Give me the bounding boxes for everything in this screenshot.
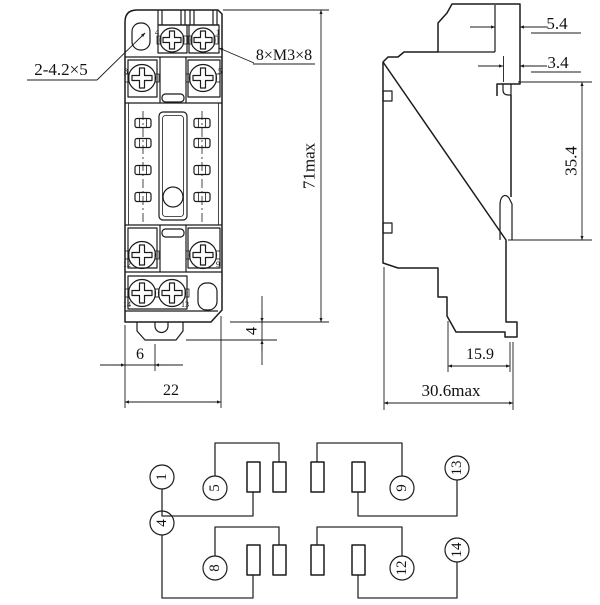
side-notch bbox=[383, 223, 392, 233]
center-post bbox=[160, 225, 186, 272]
center-post bbox=[160, 57, 186, 103]
wiring-schematic: 1 5 9 13 4 8 bbox=[150, 443, 469, 598]
dim-rail-opening: 35.4 bbox=[508, 82, 592, 240]
dim-clip-projection-label: 4 bbox=[244, 327, 261, 335]
contact-blade bbox=[352, 545, 365, 575]
dim-lower-depth: 15.9 bbox=[448, 321, 510, 372]
terminal-number-4: 4 bbox=[155, 28, 159, 37]
dim-lower-depth-label: 15.9 bbox=[466, 346, 494, 363]
rail-hook-curl bbox=[503, 84, 511, 95]
dim-rail-lip-label: 3.4 bbox=[547, 53, 569, 72]
terminal-number-1: 1 bbox=[216, 28, 220, 37]
front-view: 4 1 8 5 12 9 14 13 2-4.2×5 8×M3×8 71max bbox=[27, 10, 329, 408]
contact-blade bbox=[352, 462, 365, 492]
screw-terminal-8 bbox=[125, 65, 159, 92]
din-clip-tab bbox=[137, 322, 183, 340]
mounting-hole-bottom bbox=[198, 283, 217, 310]
screw-terminal-1 bbox=[188, 28, 218, 52]
din-clip-notch bbox=[155, 322, 168, 333]
slot-hole bbox=[163, 187, 183, 207]
contact-blade bbox=[247, 462, 260, 492]
drawing-canvas: 4 1 8 5 12 9 14 13 2-4.2×5 8×M3×8 71max bbox=[0, 0, 600, 605]
pole-group-4-8: 4 8 bbox=[150, 511, 286, 598]
dim-overall-depth-label: 30.6max bbox=[421, 381, 481, 400]
contact-blade bbox=[247, 545, 260, 575]
contact-blade bbox=[311, 545, 324, 575]
contact-pins bbox=[135, 119, 210, 202]
dim-rail-opening-label: 35.4 bbox=[562, 146, 581, 176]
terminal-number-9: 9 bbox=[216, 260, 220, 269]
relay-socket-dimension-drawing: 4 1 8 5 12 9 14 13 2-4.2×5 8×M3×8 71max bbox=[0, 0, 600, 605]
relay-slot bbox=[159, 112, 187, 220]
top-tab-inner-edge bbox=[438, 5, 495, 52]
terminal-label-8: 8 bbox=[207, 564, 223, 572]
dim-overall-height-label: 71max bbox=[300, 142, 319, 189]
contact-blade bbox=[311, 462, 324, 492]
dim-overall-depth: 30.6max bbox=[384, 267, 513, 410]
pole-group-12-14: 12 14 bbox=[311, 527, 469, 598]
screw-terminal-9 bbox=[186, 242, 220, 269]
terminal-label-14: 14 bbox=[449, 542, 465, 558]
screw-cage bbox=[128, 228, 157, 268]
terminal-number-8: 8 bbox=[124, 67, 128, 76]
terminal-number-12: 12 bbox=[123, 260, 131, 269]
callout-terminal-screws-label: 8×M3×8 bbox=[256, 47, 312, 64]
wire bbox=[317, 527, 402, 556]
top-terminal-blocks bbox=[158, 10, 219, 25]
screw-terminal-5 bbox=[186, 65, 220, 92]
wire bbox=[162, 489, 253, 516]
wire bbox=[317, 443, 402, 476]
dim-clip-offset-label: 6 bbox=[136, 346, 144, 363]
pole-group-9-13: 9 13 bbox=[311, 443, 469, 516]
terminal-label-9: 9 bbox=[394, 484, 410, 492]
dim-rail-lip: 3.4 bbox=[478, 53, 581, 82]
callout-mounting-holes-label: 2-4.2×5 bbox=[34, 60, 88, 79]
side-notch bbox=[383, 91, 392, 101]
screw-terminal-4 bbox=[157, 28, 187, 52]
terminal-label-12: 12 bbox=[394, 561, 410, 576]
dim-top-hook-width-label: 5.4 bbox=[546, 14, 568, 33]
contact-blade bbox=[273, 462, 286, 492]
contact-blade bbox=[273, 545, 286, 575]
terminal-number-5: 5 bbox=[218, 67, 222, 76]
terminal-label-5: 5 bbox=[207, 484, 223, 492]
callout-terminal-screws: 8×M3×8 bbox=[219, 47, 315, 64]
dim-overall-width-label: 22 bbox=[163, 382, 179, 399]
side-body-outline bbox=[383, 4, 520, 337]
center-slot bbox=[162, 94, 184, 102]
center-slot bbox=[162, 229, 184, 237]
terminal-number-13: 13 bbox=[181, 300, 189, 309]
terminal-number-14: 14 bbox=[123, 300, 131, 309]
terminal-label-1: 1 bbox=[154, 473, 170, 481]
terminal-label-13: 13 bbox=[449, 461, 465, 476]
side-view: 5.4 3.4 35.4 15.9 bbox=[383, 4, 592, 410]
terminal-label-4: 4 bbox=[154, 519, 170, 527]
dim-top-hook-width: 5.4 bbox=[470, 14, 581, 33]
pole-group-1-5: 1 5 bbox=[150, 443, 286, 516]
